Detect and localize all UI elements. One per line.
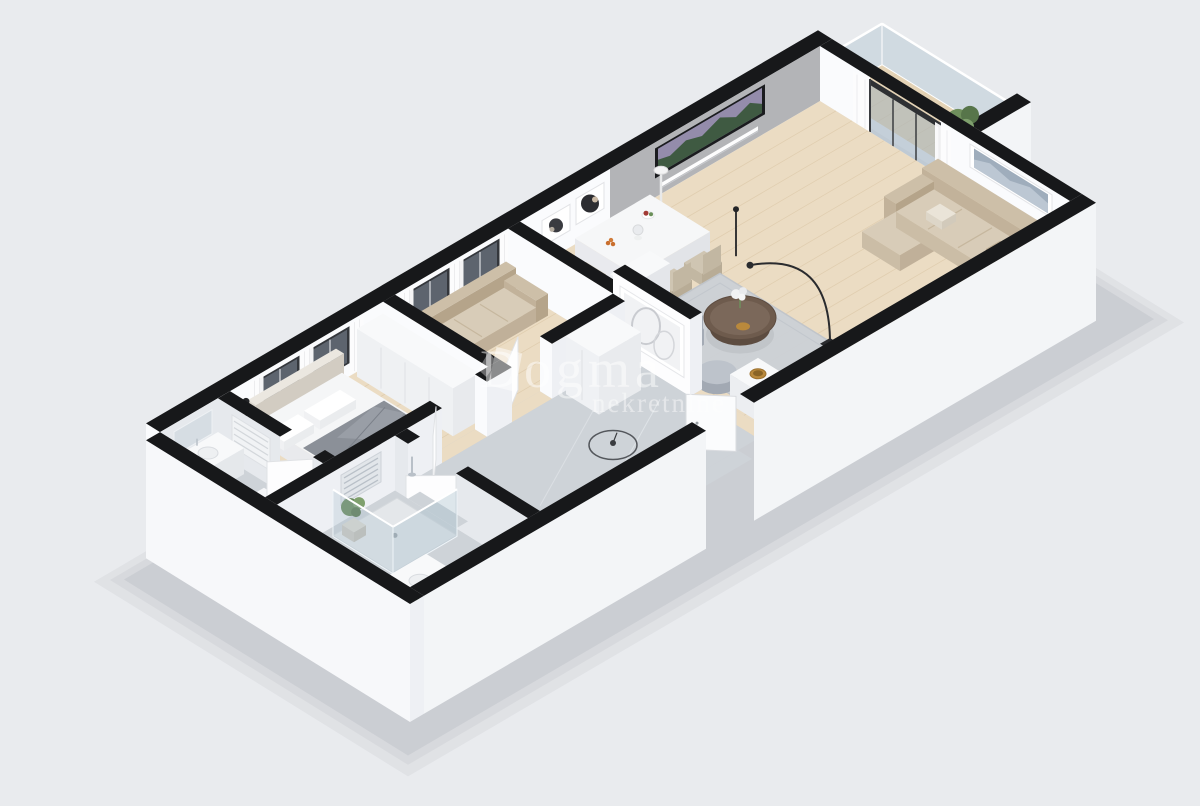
curtain [853, 71, 869, 132]
floorplan-svg [0, 0, 1200, 806]
floorplan-render: Dogma nekretnine [0, 0, 1200, 806]
